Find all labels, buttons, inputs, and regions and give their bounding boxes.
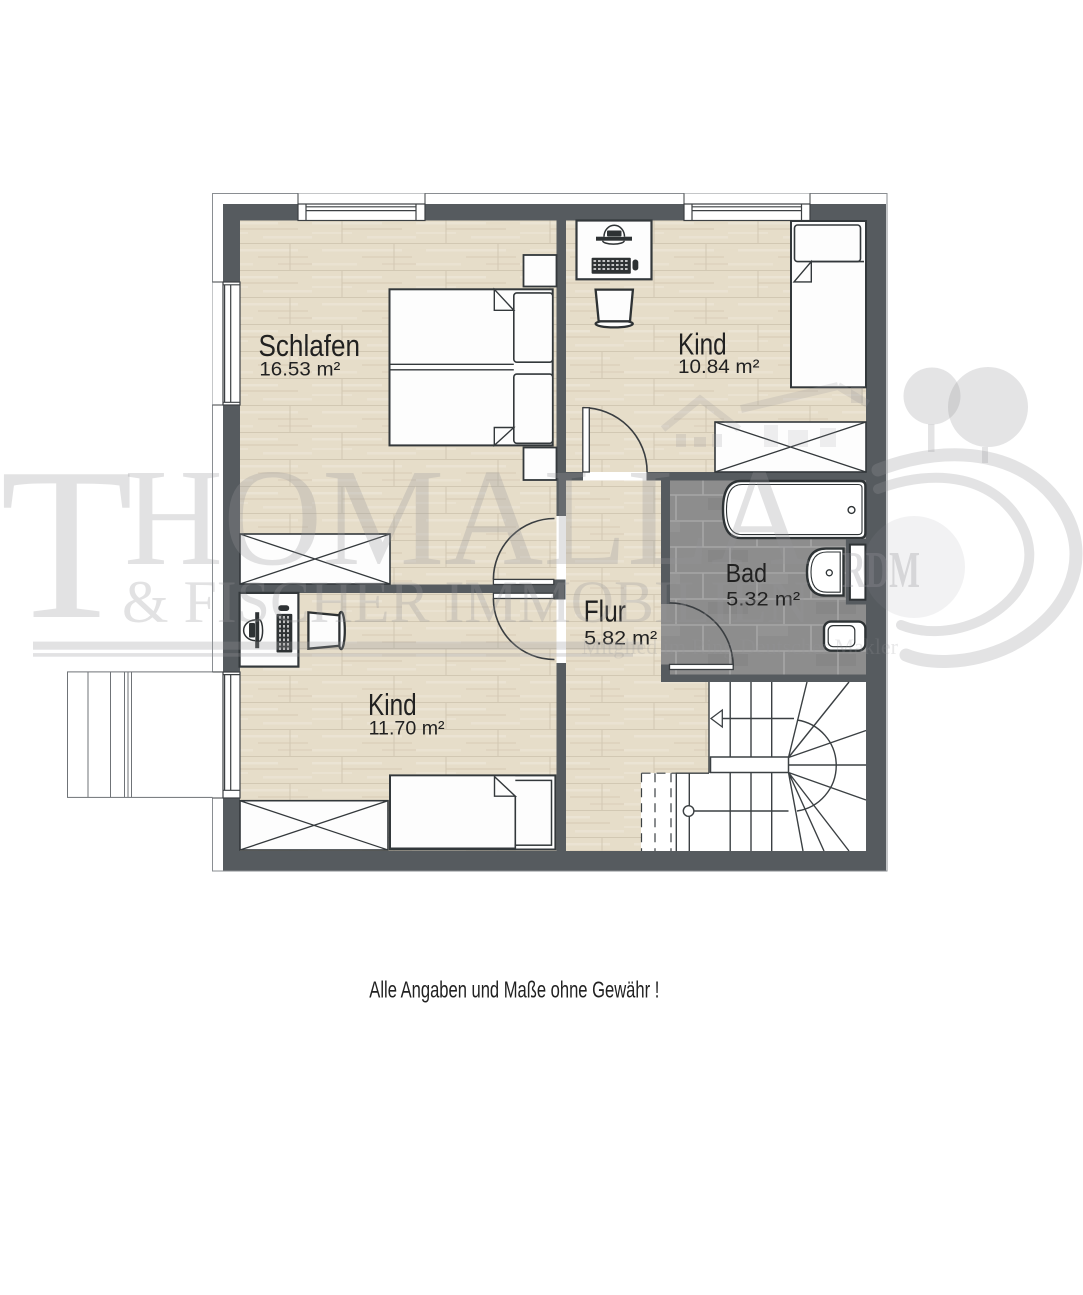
svg-text:& FISCHER IMMOBILIEN: & FISCHER IMMOBILIEN [122,569,810,635]
svg-text:11.70 m²: 11.70 m² [369,718,445,740]
svg-text:10.84 m²: 10.84 m² [678,356,760,378]
svg-text:T: T [0,424,133,665]
svg-text:Alle Angaben und Maße ohne Gew: Alle Angaben und Maße ohne Gewähr ! [369,977,659,1003]
svg-text:RDM: RDM [842,542,920,599]
svg-text:16.53 m²: 16.53 m² [259,359,341,381]
svg-text:Mitglied im Ring Deutscher Mak: Mitglied im Ring Deutscher Makler [582,634,899,659]
